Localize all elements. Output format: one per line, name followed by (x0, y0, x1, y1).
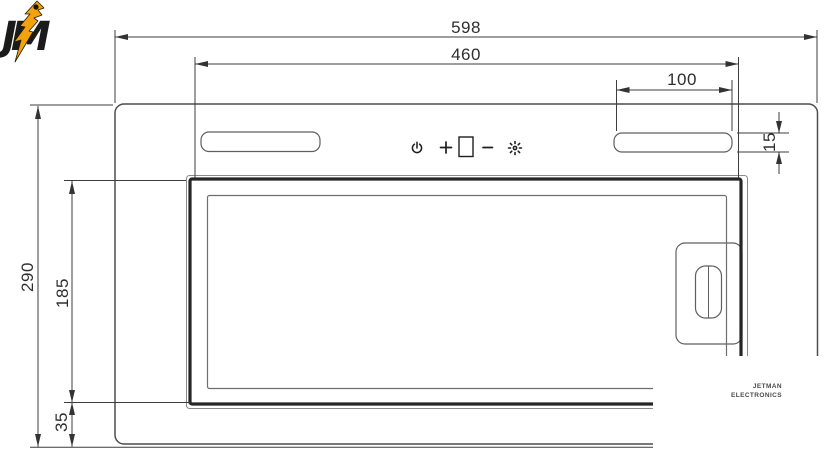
dim-label-35: 35 (53, 402, 71, 442)
dim-label-290: 290 (19, 257, 37, 297)
watermark-brand-text: JETMAN ELECTRONICS (698, 383, 782, 400)
jetman-head-icon (33, 4, 38, 9)
hood-installation-drawing: 598 460 100 15 290 185 35 JETMAN ELECTRO… (0, 0, 840, 467)
dim-label-460: 460 (446, 46, 486, 64)
dim-label-598: 598 (446, 19, 486, 37)
left-button-strip (201, 132, 320, 152)
dim-label-15: 15 (761, 122, 779, 162)
jm-logo: JM (0, 0, 62, 66)
right-button-strip (614, 133, 732, 152)
dim-label-185: 185 (54, 273, 72, 313)
dim-label-100: 100 (662, 71, 702, 89)
handle (676, 243, 742, 344)
brand-line1: JETMAN (698, 383, 782, 392)
brand-line2: ELECTRONICS (698, 392, 782, 401)
watermark-background (653, 356, 840, 467)
light-icon (509, 142, 522, 155)
